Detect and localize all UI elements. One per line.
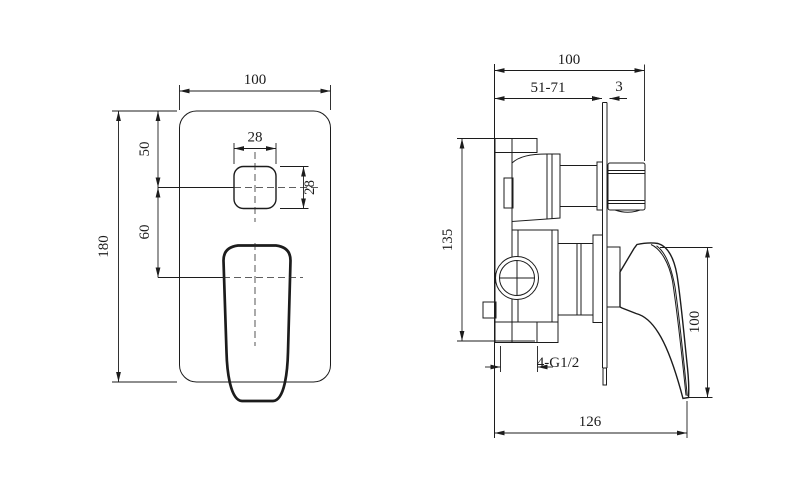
dim-button-height: 28 <box>280 167 318 209</box>
drawing-canvas: 100 180 50 60 28 28 <box>0 0 800 480</box>
dim-button-to-handle-label: 60 <box>137 225 153 240</box>
dim-body-height-label: 135 <box>440 229 456 252</box>
dim-overall-depth-label: 100 <box>558 52 581 68</box>
handle-side <box>607 243 689 399</box>
handle-front <box>224 246 291 402</box>
body-top-cap <box>495 139 537 153</box>
dim-body-height: 135 <box>440 139 537 342</box>
dim-plate-thickness-label: 3 <box>615 79 623 95</box>
dim-inlet-thread-label: 4-G1/2 <box>537 355 580 371</box>
cartridge-stem <box>558 244 593 316</box>
diverter-housing-bands <box>547 154 552 219</box>
dim-inlet-thread: 4-G1/2 <box>485 346 579 372</box>
diverter-housing <box>512 154 560 222</box>
technical-drawing: 100 180 50 60 28 28 <box>0 0 800 480</box>
faceplate-side <box>603 103 608 386</box>
body-bottom-bracket <box>495 322 558 343</box>
body-back-bracket <box>495 139 512 343</box>
dim-install-range-label: 51-71 <box>531 80 566 96</box>
handle-side-outline <box>620 243 689 399</box>
dim-button-offset: 50 <box>137 111 158 188</box>
front-view: 100 180 50 60 28 28 <box>96 72 331 401</box>
dim-handle-height: 100 <box>660 248 713 398</box>
diverter-flange <box>597 162 603 210</box>
cartridge-flange <box>593 235 603 323</box>
diverter-stem <box>560 166 597 207</box>
dim-plate-height-label: 180 <box>96 235 112 258</box>
faceplate-side-tab <box>603 368 607 385</box>
dim-plate-width-label: 100 <box>244 72 267 88</box>
dim-button-width-label: 28 <box>248 130 263 146</box>
diverter-button-side <box>608 163 645 212</box>
dim-plate-width: 100 <box>180 72 331 110</box>
dim-button-to-handle: 60 <box>137 188 158 278</box>
dim-overall-depth: 100 <box>495 52 645 161</box>
dim-handle-height-label: 100 <box>687 311 703 334</box>
valve-body-side <box>483 139 603 343</box>
dim-button-height-label: 28 <box>302 180 318 195</box>
dim-button-offset-label: 50 <box>137 142 153 157</box>
side-view: 100 51-71 3 135 100 126 <box>440 52 713 438</box>
centerlines-front <box>158 152 320 346</box>
dim-install-range: 51-71 <box>495 80 603 99</box>
cartridge-stem-ribs <box>577 244 581 316</box>
dim-overall-projection: 126 <box>495 401 688 438</box>
dim-plate-thickness: 3 <box>586 79 627 99</box>
dim-overall-projection-label: 126 <box>579 414 602 430</box>
handle-edge-lines <box>651 245 687 397</box>
handle-hub <box>607 247 620 307</box>
